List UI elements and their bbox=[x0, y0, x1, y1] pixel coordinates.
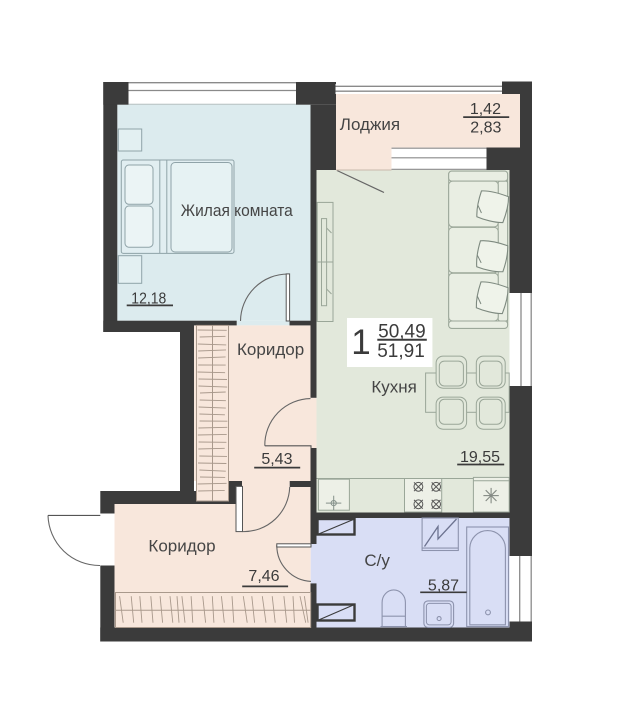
svg-text:Жилая комната: Жилая комната bbox=[181, 201, 293, 220]
svg-text:Лоджия: Лоджия bbox=[340, 115, 400, 134]
svg-text:5,43: 5,43 bbox=[261, 451, 292, 468]
svg-text:Коридор: Коридор bbox=[237, 340, 304, 359]
svg-text:Кухня: Кухня bbox=[371, 378, 417, 397]
svg-text:1,42: 1,42 bbox=[470, 101, 501, 118]
svg-text:1: 1 bbox=[351, 323, 370, 362]
svg-text:Коридор: Коридор bbox=[148, 537, 215, 556]
svg-text:2,83: 2,83 bbox=[470, 120, 501, 137]
svg-text:7,46: 7,46 bbox=[248, 568, 279, 585]
svg-text:19,55: 19,55 bbox=[460, 449, 500, 466]
svg-text:С/у: С/у bbox=[364, 551, 390, 570]
svg-text:51,91: 51,91 bbox=[377, 341, 425, 362]
